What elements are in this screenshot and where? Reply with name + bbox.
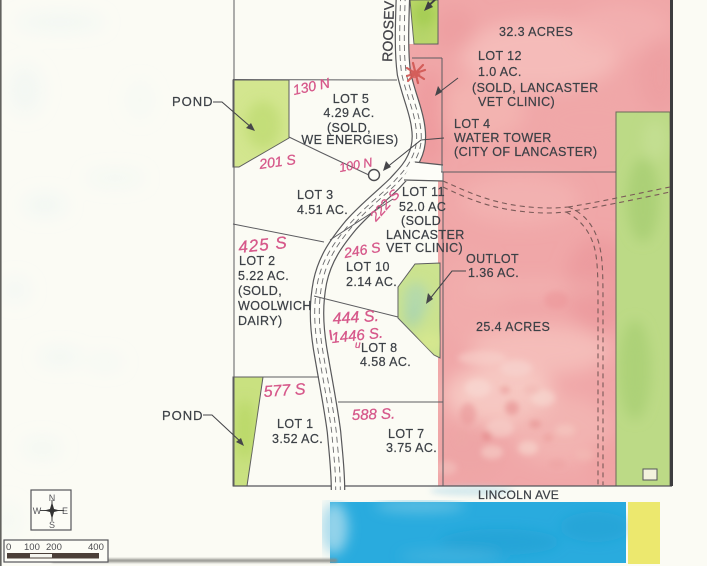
svg-text:5.22 AC.: 5.22 AC.: [238, 269, 289, 283]
svg-text:WE ENERGIES): WE ENERGIES): [301, 133, 398, 147]
svg-text:(SOLD, LANCASTER: (SOLD, LANCASTER: [472, 81, 599, 95]
svg-text:100: 100: [24, 542, 40, 553]
svg-text:DAIRY): DAIRY): [238, 314, 283, 328]
svg-text:LOT 11: LOT 11: [402, 185, 445, 199]
svg-text:VET CLINIC): VET CLINIC): [386, 241, 463, 255]
svg-text:LOT 1: LOT 1: [277, 417, 314, 431]
svg-text:52.0 AC: 52.0 AC: [399, 200, 446, 214]
svg-text:25.4 ACRES: 25.4 ACRES: [476, 320, 550, 334]
svg-text:LOT 10: LOT 10: [346, 260, 390, 274]
svg-text:OUTLOT: OUTLOT: [466, 252, 519, 266]
svg-text:POND: POND: [162, 408, 204, 423]
svg-text:577 S: 577 S: [263, 381, 306, 401]
svg-text:LOT 4: LOT 4: [454, 117, 491, 131]
svg-text:POND: POND: [172, 94, 214, 109]
svg-text:3.75 AC.: 3.75 AC.: [386, 441, 437, 455]
svg-text:2.14 AC.: 2.14 AC.: [346, 275, 397, 289]
svg-text:LOT 3: LOT 3: [297, 188, 334, 202]
svg-text:400: 400: [88, 542, 104, 553]
svg-text:LOT 7: LOT 7: [388, 427, 425, 441]
svg-text:LINCOLN AVE: LINCOLN AVE: [478, 488, 559, 502]
svg-text:4.58 AC.: 4.58 AC.: [360, 355, 411, 369]
svg-text:(CITY OF LANCASTER): (CITY OF LANCASTER): [454, 145, 598, 159]
svg-text:3.52 AC.: 3.52 AC.: [272, 432, 323, 446]
svg-text:32.3 ACRES: 32.3 ACRES: [499, 25, 573, 39]
svg-text:LANCASTER: LANCASTER: [386, 228, 465, 242]
svg-text:S: S: [49, 520, 55, 530]
svg-text:1.36 AC.: 1.36 AC.: [468, 266, 519, 280]
svg-text:VET CLINIC): VET CLINIC): [478, 95, 555, 109]
svg-text:1.0 AC.: 1.0 AC.: [478, 65, 522, 79]
svg-text:0: 0: [6, 542, 11, 553]
svg-text:LOT 12: LOT 12: [478, 49, 522, 63]
svg-text:588 S.: 588 S.: [352, 405, 396, 424]
svg-text:200: 200: [46, 542, 62, 553]
svg-text:ROOSEVELT: ROOSEVELT: [379, 0, 398, 62]
svg-text:u: u: [355, 340, 361, 351]
svg-text:4.51 AC.: 4.51 AC.: [297, 203, 348, 217]
svg-text:(SOLD,: (SOLD,: [238, 284, 282, 298]
svg-text:WOOLWICH: WOOLWICH: [238, 299, 312, 313]
svg-text:4.29 AC.: 4.29 AC.: [323, 106, 374, 120]
svg-text:LOT 5: LOT 5: [333, 92, 370, 106]
svg-text:WATER TOWER: WATER TOWER: [454, 131, 552, 145]
svg-text:(SOLD: (SOLD: [401, 214, 441, 228]
